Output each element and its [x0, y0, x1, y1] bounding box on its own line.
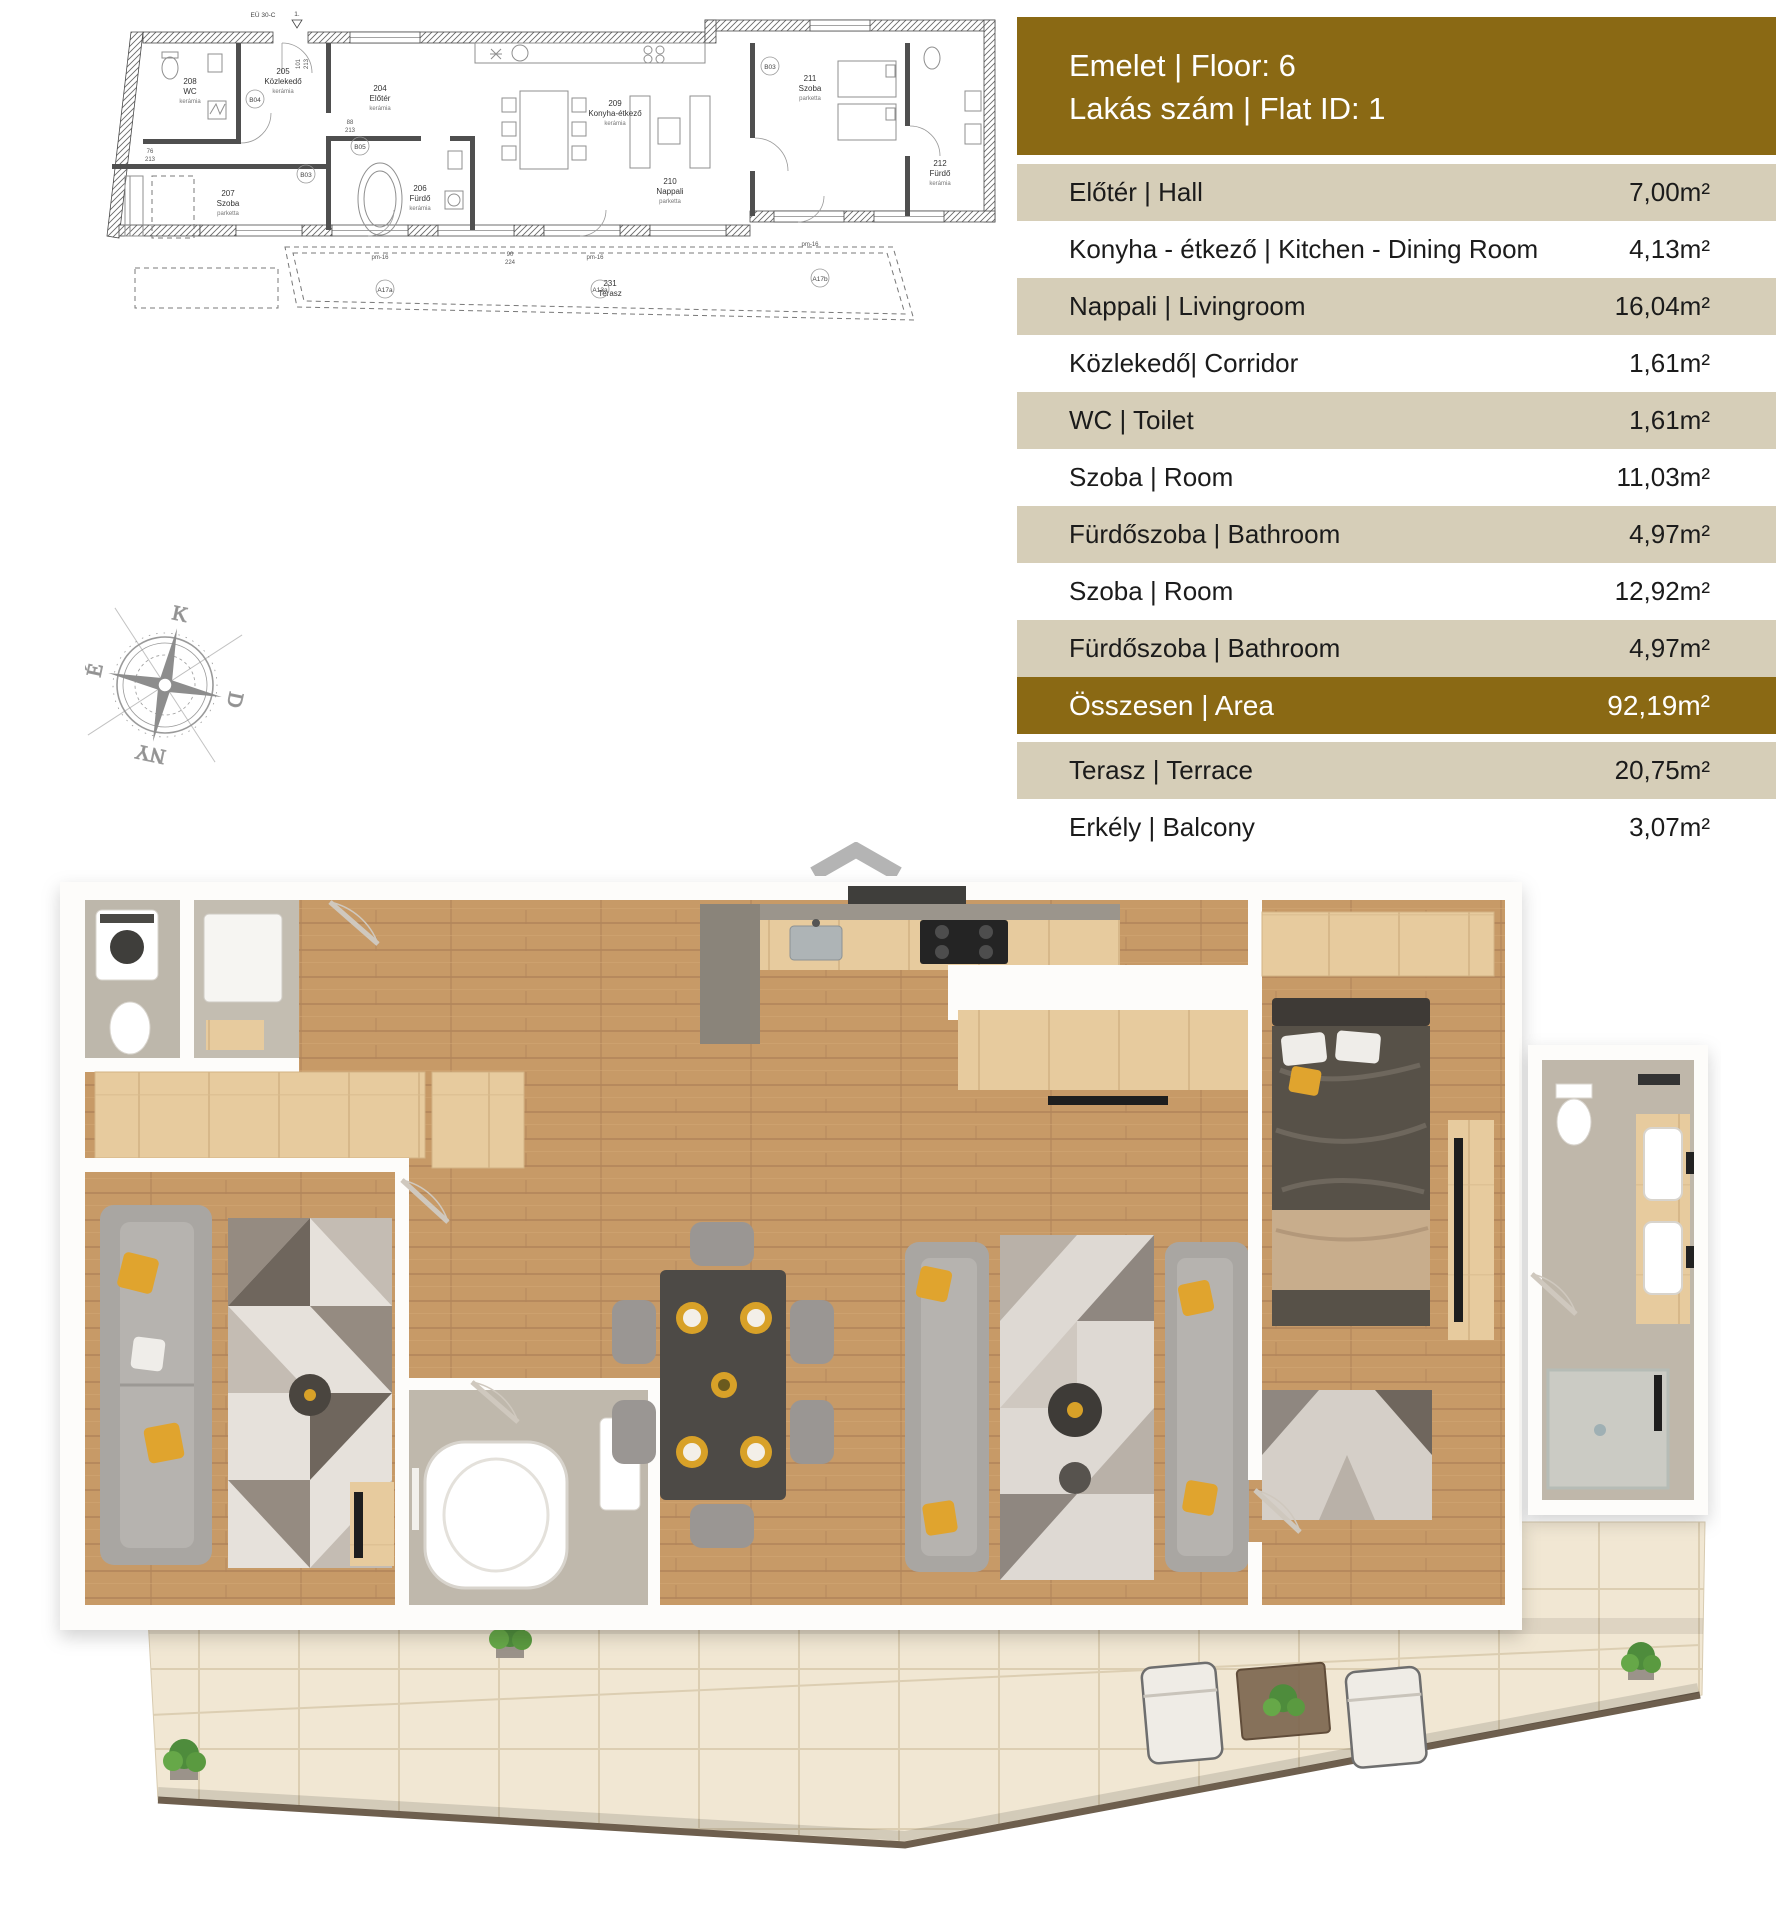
- lounge-chair: [1345, 1666, 1427, 1768]
- svg-text:B03: B03: [764, 64, 776, 71]
- door-tag-b04: B04: [246, 90, 264, 108]
- table-row: Terasz | Terrace20,75m²: [1017, 742, 1776, 799]
- room-label-207: 207Szobaparketta: [217, 189, 240, 217]
- sink-icon: [208, 54, 222, 72]
- sofa-icon: [690, 96, 710, 168]
- svg-text:76: 76: [147, 149, 154, 155]
- toilet-icon: [1557, 1099, 1591, 1145]
- compass-south-label: D: [222, 690, 245, 710]
- svg-text:Előtér: Előtér: [370, 94, 391, 103]
- svg-text:Közlekedő: Közlekedő: [264, 77, 302, 86]
- svg-text:WC: WC: [183, 87, 197, 96]
- compass-east-label: K: [170, 605, 190, 627]
- svg-text:B03: B03: [300, 172, 312, 179]
- svg-text:211: 211: [804, 74, 817, 83]
- svg-text:Konyha-étkező: Konyha-étkező: [588, 109, 642, 118]
- svg-text:213: 213: [304, 58, 310, 69]
- table-row: WC | Toilet1,61m²: [1017, 392, 1776, 449]
- svg-text:B04: B04: [249, 97, 261, 104]
- pillow-yellow: [1177, 1279, 1215, 1317]
- pillow-yellow: [1288, 1066, 1322, 1097]
- flyer-page: 1. EÜ 30-C: [0, 0, 1776, 1920]
- compass-rose: K D NY É: [85, 605, 245, 765]
- pillow-yellow: [143, 1422, 185, 1464]
- towel-rail: [412, 1468, 419, 1530]
- dining-chair: [790, 1400, 834, 1464]
- room-label: Erkély | Balcony: [1017, 812, 1255, 843]
- floorplan-2d: 1. EÜ 30-C: [50, 6, 1000, 328]
- dining-chair: [612, 1300, 656, 1364]
- dining-chair: [690, 1222, 754, 1266]
- svg-text:kerámia: kerámia: [604, 121, 626, 127]
- total-label: Összesen | Area: [1017, 690, 1274, 722]
- svg-text:B05: B05: [354, 144, 366, 151]
- table-row: Közlekedő| Corridor1,61m²: [1017, 335, 1776, 392]
- hall-wardrobe: [95, 1072, 425, 1158]
- kitchen-sink: [790, 926, 842, 960]
- lounge-chair: [1141, 1662, 1223, 1764]
- room-label: Konyha - étkező | Kitchen - Dining Room: [1017, 234, 1538, 265]
- svg-text:101: 101: [296, 58, 302, 69]
- svg-text:213: 213: [145, 157, 156, 163]
- flat-header: Emelet | Floor: 6 Lakás szám | Flat ID: …: [1017, 17, 1776, 155]
- room-area: 3,07m²: [1629, 812, 1776, 843]
- svg-text:213: 213: [345, 128, 356, 134]
- room-area: 1,61m²: [1629, 348, 1776, 379]
- balcony-outline: [135, 268, 278, 308]
- room-label-211: 211Szobaparketta: [799, 74, 822, 102]
- table-row: Konyha - étkező | Kitchen - Dining Room4…: [1017, 221, 1776, 278]
- dining-chair: [690, 1504, 754, 1548]
- cooktop-icon: [644, 46, 664, 63]
- shower: [1548, 1370, 1668, 1488]
- room-label-209: 209Konyha-étkezőkerámia: [588, 99, 642, 127]
- room-label-210: 210Nappaliparketta: [656, 177, 683, 205]
- svg-text:A17a: A17a: [377, 287, 393, 294]
- svg-text:A17b: A17b: [812, 276, 828, 283]
- window-tag-a17b: A17b: [811, 269, 829, 287]
- room-area: 7,00m²: [1629, 177, 1776, 208]
- svg-text:209: 209: [608, 99, 622, 108]
- compass-west-label: NY: [133, 740, 168, 765]
- svg-text:207: 207: [221, 189, 235, 198]
- flat-id-line: Lakás szám | Flat ID: 1: [1069, 87, 1776, 130]
- room-area: 11,03m²: [1617, 462, 1776, 493]
- dining-chair: [612, 1400, 656, 1464]
- pillow-yellow: [1181, 1479, 1218, 1516]
- svg-text:Nappali: Nappali: [656, 187, 683, 196]
- svg-text:90: 90: [507, 252, 514, 258]
- rug-bedroom: [1262, 1390, 1432, 1520]
- tv-icon: [1454, 1138, 1463, 1322]
- tv-icon: [1048, 1096, 1168, 1105]
- bedroom-left: [85, 1158, 409, 1605]
- bathroom-right: [1542, 1060, 1694, 1500]
- wardrobe: [1262, 912, 1494, 976]
- table-row: Előtér | Hall7,00m²: [1017, 164, 1776, 221]
- sink-icon: [965, 91, 981, 111]
- entrance-number: 1.: [294, 11, 300, 18]
- room-label: Fürdőszoba | Bathroom: [1017, 519, 1340, 550]
- terrace-outline: [135, 247, 914, 320]
- svg-text:212: 212: [933, 159, 947, 168]
- bed-headboard: [1272, 998, 1430, 1026]
- tv-icon: [354, 1492, 363, 1558]
- shower-tray: [204, 914, 282, 1002]
- pillow-yellow: [915, 1265, 953, 1303]
- svg-text:parketta: parketta: [659, 199, 681, 205]
- svg-text:A13a: A13a: [592, 287, 608, 294]
- svg-text:Szoba: Szoba: [799, 84, 822, 93]
- apartment-3d: [60, 882, 1708, 1630]
- bed-throw: [1272, 1210, 1430, 1290]
- boiler-icon: [490, 49, 502, 59]
- pillow-yellow: [922, 1500, 959, 1537]
- kitchen-counter: [475, 43, 705, 63]
- sink: [1644, 1222, 1682, 1294]
- table-row: Szoba | Room12,92m²: [1017, 563, 1776, 620]
- room-area: 16,04m²: [1615, 291, 1776, 322]
- room-label: Szoba | Room: [1017, 576, 1233, 607]
- svg-text:pm-16: pm-16: [801, 242, 819, 248]
- svg-text:kerámia: kerámia: [369, 106, 391, 112]
- sink-icon: [965, 124, 981, 144]
- svg-text:kerámia: kerámia: [409, 206, 431, 212]
- svg-text:206: 206: [413, 184, 427, 193]
- electric-panel-icon: [208, 101, 226, 119]
- plan-furniture: [125, 43, 981, 238]
- room-area: 12,92m²: [1615, 576, 1776, 607]
- toilet-icon: [162, 57, 178, 79]
- room-label: Terasz | Terrace: [1017, 755, 1253, 786]
- svg-text:205: 205: [276, 67, 290, 76]
- svg-text:kerámia: kerámia: [179, 99, 201, 105]
- svg-text:kerámia: kerámia: [272, 89, 294, 95]
- tall-unit: [700, 904, 760, 1044]
- room-label: Nappali | Livingroom: [1017, 291, 1306, 322]
- pouf: [1059, 1462, 1091, 1494]
- room-label: Fürdőszoba | Bathroom: [1017, 633, 1340, 664]
- table-row: Erkély | Balcony3,07m²: [1017, 799, 1776, 856]
- flat-info-panel: Emelet | Floor: 6 Lakás szám | Flat ID: …: [1017, 17, 1776, 856]
- room-label-208: 208WCkerámia: [179, 77, 201, 105]
- wc-utility-rooms: [85, 900, 299, 1072]
- window-glyph: [236, 225, 302, 236]
- kitchen-sink-icon: [512, 45, 528, 61]
- svg-text:210: 210: [663, 177, 677, 186]
- room-label-206: 206Fürdőkerámia: [409, 184, 431, 212]
- svg-text:parketta: parketta: [799, 96, 821, 102]
- entrance-label: EÜ 30-C: [251, 11, 276, 19]
- plan-annotations: 101 213 88 213 76 213 90 224 pm-16 pm-16…: [145, 57, 829, 298]
- beds: [838, 61, 896, 140]
- room-label-205: 205Közlekedőkerámia: [264, 67, 302, 95]
- table-row: Fürdőszoba | Bathroom4,97m²: [1017, 620, 1776, 677]
- bathtub: [425, 1442, 567, 1588]
- dining-chair: [790, 1300, 834, 1364]
- shelf: [1638, 1074, 1680, 1085]
- toilet-icon: [110, 1002, 150, 1054]
- svg-text:pm-16: pm-16: [586, 255, 604, 261]
- cooktop: [920, 920, 1008, 964]
- bathtub-icon: [358, 163, 402, 235]
- room-label: Szoba | Room: [1017, 462, 1233, 493]
- pillow-white: [130, 1336, 166, 1372]
- room-area: 4,97m²: [1629, 519, 1776, 550]
- hall-cabinet: [432, 1072, 524, 1168]
- table-row: Fürdőszoba | Bathroom4,97m²: [1017, 506, 1776, 563]
- room-area: 4,97m²: [1629, 633, 1776, 664]
- pillow-white: [1281, 1032, 1328, 1066]
- svg-text:Szoba: Szoba: [217, 199, 240, 208]
- floorplan-3d: [0, 870, 1776, 1920]
- room-label: WC | Toilet: [1017, 405, 1194, 436]
- total-area: 92,19m²: [1607, 690, 1776, 722]
- dining-table: [520, 91, 568, 169]
- room-label-212: 212Fürdőkerámia: [929, 159, 951, 187]
- svg-text:parketta: parketta: [217, 211, 239, 217]
- compass-north-label: É: [85, 661, 108, 679]
- toilet-icon: [924, 47, 940, 69]
- table-row: Nappali | Livingroom16,04m²: [1017, 278, 1776, 335]
- svg-text:224: 224: [505, 260, 516, 266]
- svg-text:Fürdő: Fürdő: [410, 194, 431, 203]
- living-room: [905, 965, 1262, 1580]
- window-tag-a17a: A17a: [376, 280, 394, 298]
- svg-text:88: 88: [347, 120, 354, 126]
- svg-text:208: 208: [183, 77, 197, 86]
- shower-fixture: [1654, 1375, 1662, 1431]
- room-area: 4,13m²: [1629, 234, 1776, 265]
- tv-sideboard: [958, 1010, 1252, 1090]
- door-tag-b03b: B03: [761, 57, 779, 75]
- sofa-icon: [630, 96, 650, 168]
- room-area: 1,61m²: [1629, 405, 1776, 436]
- sink: [1644, 1128, 1682, 1200]
- svg-text:204: 204: [373, 84, 387, 93]
- room-label: Közlekedő| Corridor: [1017, 348, 1298, 379]
- svg-text:Fürdő: Fürdő: [930, 169, 951, 178]
- room-label-204: 204Előtérkerámia: [369, 84, 391, 112]
- table-row-total: Összesen | Area92,19m²: [1017, 677, 1776, 734]
- svg-text:kerámia: kerámia: [929, 181, 951, 187]
- pillow-white: [1335, 1030, 1381, 1064]
- room-area: 20,75m²: [1615, 755, 1776, 786]
- coffee-table: [658, 118, 680, 144]
- room-label: Előtér | Hall: [1017, 177, 1203, 208]
- svg-text:pm-16: pm-16: [371, 255, 389, 261]
- floor-line: Emelet | Floor: 6: [1069, 44, 1776, 87]
- table-row: Szoba | Room11,03m²: [1017, 449, 1776, 506]
